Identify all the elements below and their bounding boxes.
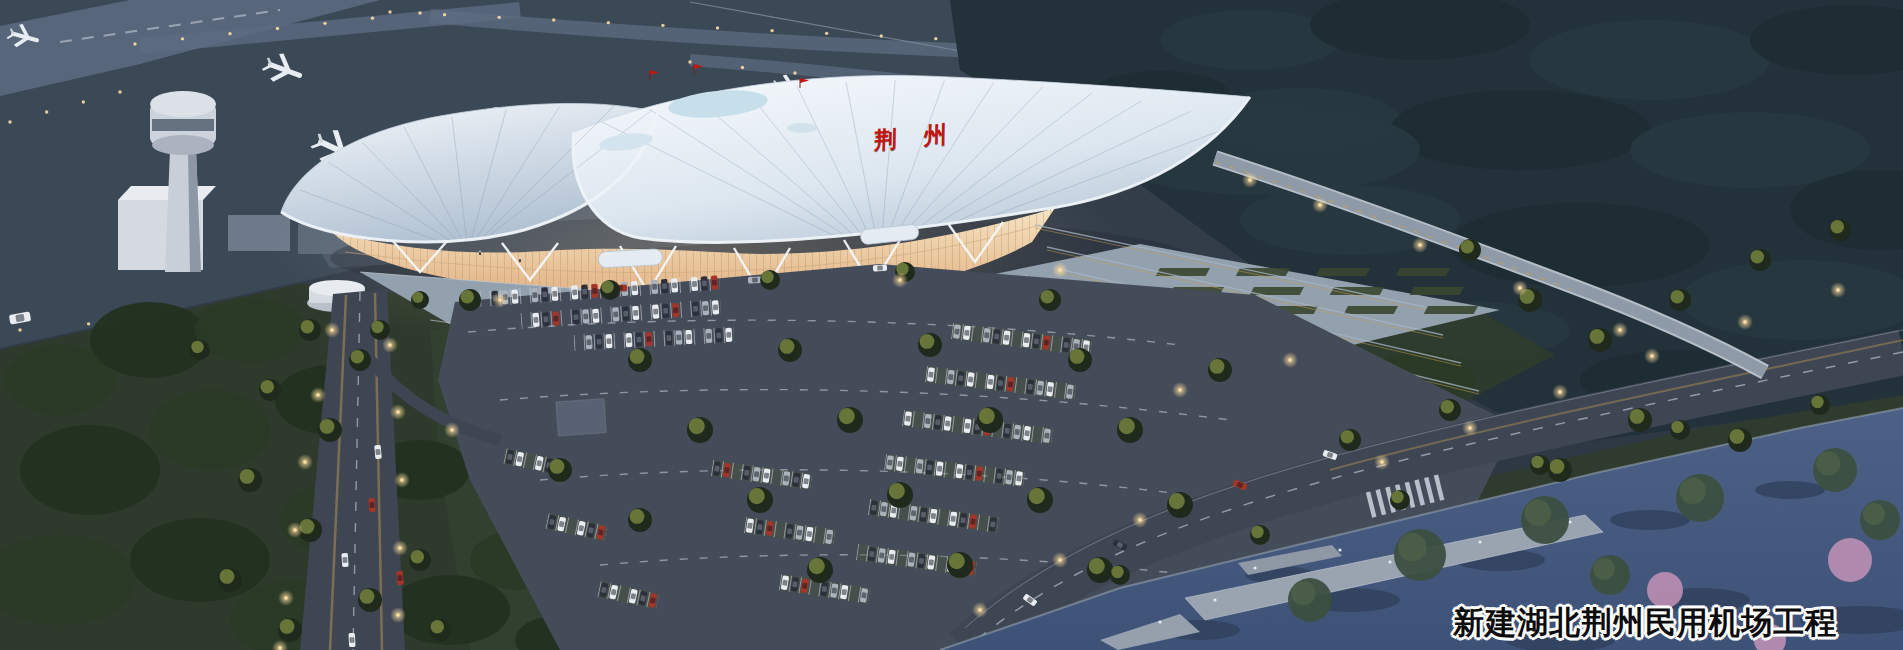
- car-glass: [716, 332, 721, 338]
- car-glass: [592, 288, 597, 294]
- forest-blob: [1390, 90, 1650, 170]
- car-glass: [672, 282, 677, 288]
- edge-light: [8, 120, 11, 123]
- car: [665, 331, 672, 345]
- car-glass: [797, 530, 803, 536]
- car-glass: [553, 316, 558, 322]
- edge-light: [716, 26, 719, 29]
- lamp: [278, 646, 282, 650]
- car-glass: [1016, 475, 1021, 481]
- edge-light: [45, 110, 48, 113]
- lit-tree-canopy: [240, 469, 255, 484]
- person: [519, 259, 521, 262]
- pier-lamp: [1213, 598, 1216, 601]
- car-glass: [692, 281, 697, 287]
- car-glass: [767, 525, 773, 531]
- lamp: [1248, 178, 1252, 182]
- car-glass: [613, 311, 618, 317]
- car-glass: [1008, 381, 1013, 387]
- edge-light: [276, 27, 279, 30]
- car-glass: [1027, 384, 1032, 390]
- car-glass: [542, 292, 547, 298]
- car-glass: [596, 339, 601, 345]
- car-glass: [793, 477, 799, 483]
- lit-tree-canopy: [350, 350, 364, 364]
- car: [374, 445, 382, 460]
- water-patch: [1610, 510, 1690, 530]
- car-glass: [626, 337, 631, 343]
- car-glass: [1024, 430, 1029, 436]
- lit-tree-canopy: [1670, 290, 1684, 304]
- edge-light: [497, 16, 500, 19]
- willow-highlight: [1680, 478, 1706, 504]
- lit-tree-canopy: [889, 483, 905, 499]
- lamp: [1743, 320, 1747, 324]
- car-glass: [782, 580, 788, 586]
- willow-highlight: [1398, 533, 1427, 562]
- car-glass: [957, 468, 962, 474]
- car-glass: [673, 307, 678, 313]
- car: [552, 311, 559, 325]
- car: [652, 304, 659, 318]
- car: [592, 309, 599, 323]
- edge-light: [770, 29, 773, 32]
- lamp: [396, 410, 400, 414]
- tree-cluster: [130, 518, 270, 602]
- car: [612, 307, 619, 321]
- edge-light: [607, 21, 610, 24]
- scene-canvas: [0, 0, 1903, 650]
- car-glass: [889, 554, 895, 560]
- lit-tree-canopy: [430, 620, 444, 634]
- car-glass: [871, 505, 877, 511]
- car: [662, 304, 669, 318]
- lit-tree-canopy: [1169, 493, 1185, 509]
- car-glass: [15, 314, 25, 323]
- lit-tree-canopy: [1089, 558, 1105, 574]
- car: [582, 309, 589, 323]
- edge-light: [688, 60, 691, 63]
- car: [591, 284, 598, 298]
- planter-bed: [1344, 306, 1398, 314]
- lit-tree-canopy: [1460, 240, 1474, 254]
- lamp: [1138, 518, 1142, 522]
- lit-tree-canopy: [1590, 329, 1605, 344]
- lamp: [1058, 268, 1062, 272]
- lit-tree-canopy: [1040, 290, 1054, 304]
- lit-tree-canopy: [920, 334, 935, 349]
- tower-cab-roof: [150, 91, 216, 117]
- car-glass: [931, 513, 937, 519]
- car-glass: [950, 516, 956, 522]
- car-glass: [909, 557, 915, 563]
- blossom-tree: [1828, 538, 1872, 582]
- car-glass: [1014, 429, 1019, 435]
- lit-tree-canopy: [280, 619, 295, 634]
- car: [348, 633, 355, 647]
- car-glass: [652, 284, 657, 290]
- car-glass: [879, 552, 885, 558]
- car: [671, 278, 678, 292]
- edge-light: [82, 100, 85, 103]
- edge-light: [741, 66, 744, 69]
- car-glass: [802, 583, 808, 589]
- car: [715, 328, 722, 342]
- car: [632, 306, 639, 320]
- car-glass: [714, 466, 720, 472]
- car: [541, 287, 548, 301]
- car-glass: [572, 289, 577, 295]
- lit-tree-canopy: [601, 281, 613, 293]
- lamp: [1468, 426, 1472, 430]
- car-glass: [764, 473, 770, 479]
- forest-blob: [1530, 20, 1770, 100]
- lit-tree-canopy: [780, 339, 795, 354]
- lit-tree-canopy: [1671, 421, 1683, 433]
- car: [645, 332, 652, 346]
- car: [572, 310, 579, 324]
- car-glass: [1063, 342, 1068, 348]
- car-glass: [646, 336, 651, 342]
- lit-tree-canopy: [371, 321, 383, 333]
- car: [702, 301, 709, 315]
- car-glass: [349, 637, 354, 643]
- car-glass: [1047, 386, 1052, 392]
- car-glass: [826, 534, 832, 540]
- car: [368, 498, 376, 513]
- car-glass: [1044, 340, 1049, 346]
- lamp: [388, 343, 392, 347]
- lit-tree-canopy: [1070, 349, 1085, 364]
- lit-tree-canopy: [410, 550, 424, 564]
- planter-bed: [1396, 268, 1450, 276]
- car: [685, 330, 692, 344]
- car-glass: [693, 306, 698, 312]
- lit-tree-canopy: [320, 419, 335, 434]
- service-building-roof: [118, 186, 216, 200]
- car-glass: [919, 558, 925, 564]
- person-head: [479, 251, 481, 253]
- lit-tree-canopy: [689, 418, 705, 434]
- lamp: [1318, 203, 1322, 207]
- lit-tree-canopy: [220, 569, 235, 584]
- planter-bed: [1316, 268, 1370, 276]
- car: [635, 332, 642, 346]
- car-glass: [686, 334, 691, 340]
- lamp: [450, 428, 454, 432]
- tree-cluster: [20, 425, 160, 515]
- lit-tree-canopy: [1750, 250, 1764, 264]
- lit-tree-canopy: [979, 408, 995, 424]
- lamp: [1518, 286, 1522, 290]
- car-glass: [633, 310, 638, 316]
- car: [532, 313, 539, 327]
- car-glass: [787, 528, 793, 534]
- car-glass: [653, 309, 658, 315]
- lit-tree-canopy: [412, 292, 423, 303]
- car: [705, 329, 712, 343]
- car-glass: [968, 376, 973, 382]
- lit-tree-canopy: [1029, 488, 1045, 504]
- car-glass: [964, 330, 969, 336]
- lit-tree-canopy: [809, 558, 825, 574]
- car-glass: [1004, 335, 1009, 341]
- lit-tree-canopy: [1119, 418, 1135, 434]
- edge-light: [443, 13, 446, 16]
- car-glass: [623, 311, 628, 317]
- lit-tree-canopy: [1830, 220, 1844, 234]
- car: [651, 280, 658, 294]
- willow-highlight: [1525, 500, 1551, 526]
- lamp: [1288, 358, 1292, 362]
- lit-tree-canopy: [1730, 429, 1745, 444]
- lamp: [1836, 288, 1840, 292]
- car-glass: [533, 317, 538, 323]
- edge-light: [793, 71, 796, 74]
- lit-tree-canopy: [949, 553, 965, 569]
- lit-tree-canopy: [191, 341, 203, 353]
- airport-dusk-rendering: 荆州 新建湖北荆州民用机场工程: [0, 0, 1903, 650]
- car: [585, 335, 592, 349]
- lamp: [1618, 328, 1622, 332]
- car-glass: [1006, 474, 1011, 480]
- edge-light: [880, 34, 883, 37]
- car-glass: [967, 469, 972, 475]
- car-glass: [954, 329, 959, 335]
- car: [675, 330, 682, 344]
- car-glass: [606, 338, 611, 344]
- car-glass: [754, 471, 760, 477]
- car: [571, 285, 578, 299]
- car-glass: [593, 313, 598, 319]
- car: [622, 306, 629, 320]
- lamp: [396, 613, 400, 617]
- car-glass: [582, 289, 587, 295]
- car: [672, 303, 679, 317]
- car-glass: [532, 292, 537, 298]
- car-glass: [713, 304, 718, 310]
- edge-light: [934, 37, 937, 40]
- car: [631, 281, 638, 295]
- car-glass: [925, 418, 930, 424]
- car: [542, 312, 549, 326]
- car-glass: [822, 586, 828, 592]
- lit-tree-canopy: [1811, 396, 1823, 408]
- lamp: [1418, 243, 1422, 247]
- car: [691, 277, 698, 291]
- lit-tree-canopy: [761, 271, 773, 283]
- car-glass: [375, 449, 380, 455]
- pier-lamp: [1253, 566, 1256, 569]
- edge-light: [118, 90, 121, 93]
- planter-bed: [1424, 306, 1478, 314]
- willow-highlight: [1863, 503, 1885, 525]
- car-glass: [970, 519, 976, 525]
- lit-tree-canopy: [1111, 566, 1123, 578]
- pier-lamp: [1158, 620, 1161, 623]
- lamp: [1178, 388, 1182, 392]
- car-glass: [712, 280, 717, 286]
- car-glass: [1004, 428, 1009, 434]
- edge-light: [323, 22, 326, 25]
- lamp: [1058, 558, 1062, 562]
- car-glass: [676, 335, 681, 341]
- car-glass: [887, 460, 892, 466]
- lit-tree-canopy: [1391, 491, 1403, 503]
- car: [712, 300, 719, 314]
- planter-bed: [1156, 268, 1210, 276]
- lamp: [898, 278, 902, 282]
- lamp: [1380, 460, 1384, 464]
- willow-highlight: [1593, 558, 1615, 580]
- lit-tree-canopy: [360, 589, 375, 604]
- car-glass: [905, 416, 910, 422]
- car: [581, 284, 588, 298]
- car: [341, 553, 348, 567]
- car: [511, 289, 518, 303]
- edge-light: [18, 328, 21, 331]
- lit-tree-canopy: [839, 408, 855, 424]
- edge-light: [133, 42, 136, 45]
- car-glass: [928, 372, 933, 378]
- car-glass: [977, 471, 982, 477]
- car-glass: [965, 423, 970, 429]
- car: [692, 302, 699, 316]
- car-glass: [841, 589, 847, 595]
- car-glass: [984, 332, 989, 338]
- car-glass: [990, 521, 996, 527]
- car-glass: [757, 524, 763, 530]
- car: [711, 275, 718, 289]
- car-glass: [891, 507, 897, 513]
- car-glass: [958, 375, 963, 381]
- substation-building: [556, 399, 606, 436]
- car-glass: [663, 308, 668, 314]
- lit-tree-canopy: [1251, 526, 1263, 538]
- edge-light: [87, 322, 90, 325]
- lamp: [978, 608, 982, 612]
- lit-tree-canopy: [630, 349, 645, 364]
- car-glass: [726, 332, 731, 338]
- car-glass: [929, 559, 935, 565]
- forest-blob: [1450, 203, 1710, 287]
- car-glass: [397, 575, 402, 581]
- car-glass: [869, 551, 875, 557]
- car-glass: [512, 294, 517, 300]
- tree-cluster: [195, 298, 305, 362]
- car-glass: [945, 420, 950, 426]
- car-glass: [803, 478, 809, 484]
- willow-highlight: [1816, 451, 1840, 475]
- roof-skylight: [787, 123, 817, 133]
- tree-cluster: [150, 390, 270, 470]
- car: [701, 276, 708, 290]
- car-glass: [369, 502, 374, 508]
- car-glass: [632, 285, 637, 291]
- car-glass: [937, 466, 942, 472]
- car-glass: [917, 463, 922, 469]
- lit-tree-canopy: [1440, 400, 1454, 414]
- car: [595, 335, 602, 349]
- car-glass: [752, 277, 758, 282]
- car-glass: [921, 512, 927, 518]
- car-glass: [636, 337, 641, 343]
- car-glass: [792, 581, 798, 587]
- car-glass: [744, 470, 750, 476]
- willow-highlight: [1291, 581, 1315, 605]
- car-glass: [927, 464, 932, 470]
- edge-light: [418, 11, 421, 14]
- lamp: [400, 478, 404, 482]
- planter-bed: [1410, 287, 1464, 295]
- lit-tree-canopy: [749, 488, 765, 504]
- person-head: [519, 258, 521, 260]
- car-glass: [724, 467, 730, 473]
- lamp: [293, 528, 297, 532]
- car-glass: [583, 314, 588, 320]
- edge-light: [388, 10, 391, 13]
- car-glass: [988, 379, 993, 385]
- lamp: [1650, 354, 1654, 358]
- lit-tree-canopy: [550, 459, 565, 474]
- pier-lamp: [1388, 560, 1391, 563]
- lit-tree-canopy: [1550, 459, 1565, 474]
- lamp: [498, 298, 502, 302]
- lit-tree-canopy: [1340, 430, 1354, 444]
- car-glass: [994, 333, 999, 339]
- car-glass: [807, 531, 813, 537]
- car-glass: [342, 557, 347, 563]
- lit-tree-canopy: [630, 509, 645, 524]
- car-glass: [996, 473, 1001, 479]
- lamp: [303, 460, 307, 464]
- project-caption: 新建湖北荆州民用机场工程: [1453, 602, 1837, 644]
- edge-light: [371, 16, 374, 19]
- tower-cab-base: [152, 135, 214, 155]
- person: [479, 252, 481, 255]
- car-glass: [662, 283, 667, 289]
- lamp: [398, 546, 402, 550]
- car-glass: [573, 314, 578, 320]
- car-glass: [1034, 338, 1039, 344]
- car: [873, 264, 887, 271]
- car-glass: [1024, 337, 1029, 343]
- car-glass: [784, 475, 790, 481]
- lamp: [330, 328, 334, 332]
- edge-light: [661, 24, 664, 27]
- lamp: [1558, 390, 1562, 394]
- car: [625, 333, 632, 347]
- car-glass: [1067, 389, 1072, 395]
- lit-tree-canopy: [260, 380, 274, 394]
- entrance-canopy: [598, 249, 663, 268]
- tower-cab-windows: [152, 119, 214, 131]
- car-glass: [1044, 433, 1049, 439]
- lamp: [316, 393, 320, 397]
- lit-tree-canopy: [1531, 456, 1543, 468]
- car-glass: [832, 587, 838, 593]
- car: [605, 334, 612, 348]
- car-glass: [1037, 385, 1042, 391]
- edge-light: [825, 32, 828, 35]
- water-patch: [1755, 481, 1825, 499]
- car-glass: [861, 592, 867, 598]
- car-glass: [960, 517, 966, 523]
- lit-tree-canopy: [460, 290, 474, 304]
- car-glass: [948, 374, 953, 380]
- lit-tree-canopy: [300, 320, 314, 334]
- pier-lamp: [1338, 548, 1341, 551]
